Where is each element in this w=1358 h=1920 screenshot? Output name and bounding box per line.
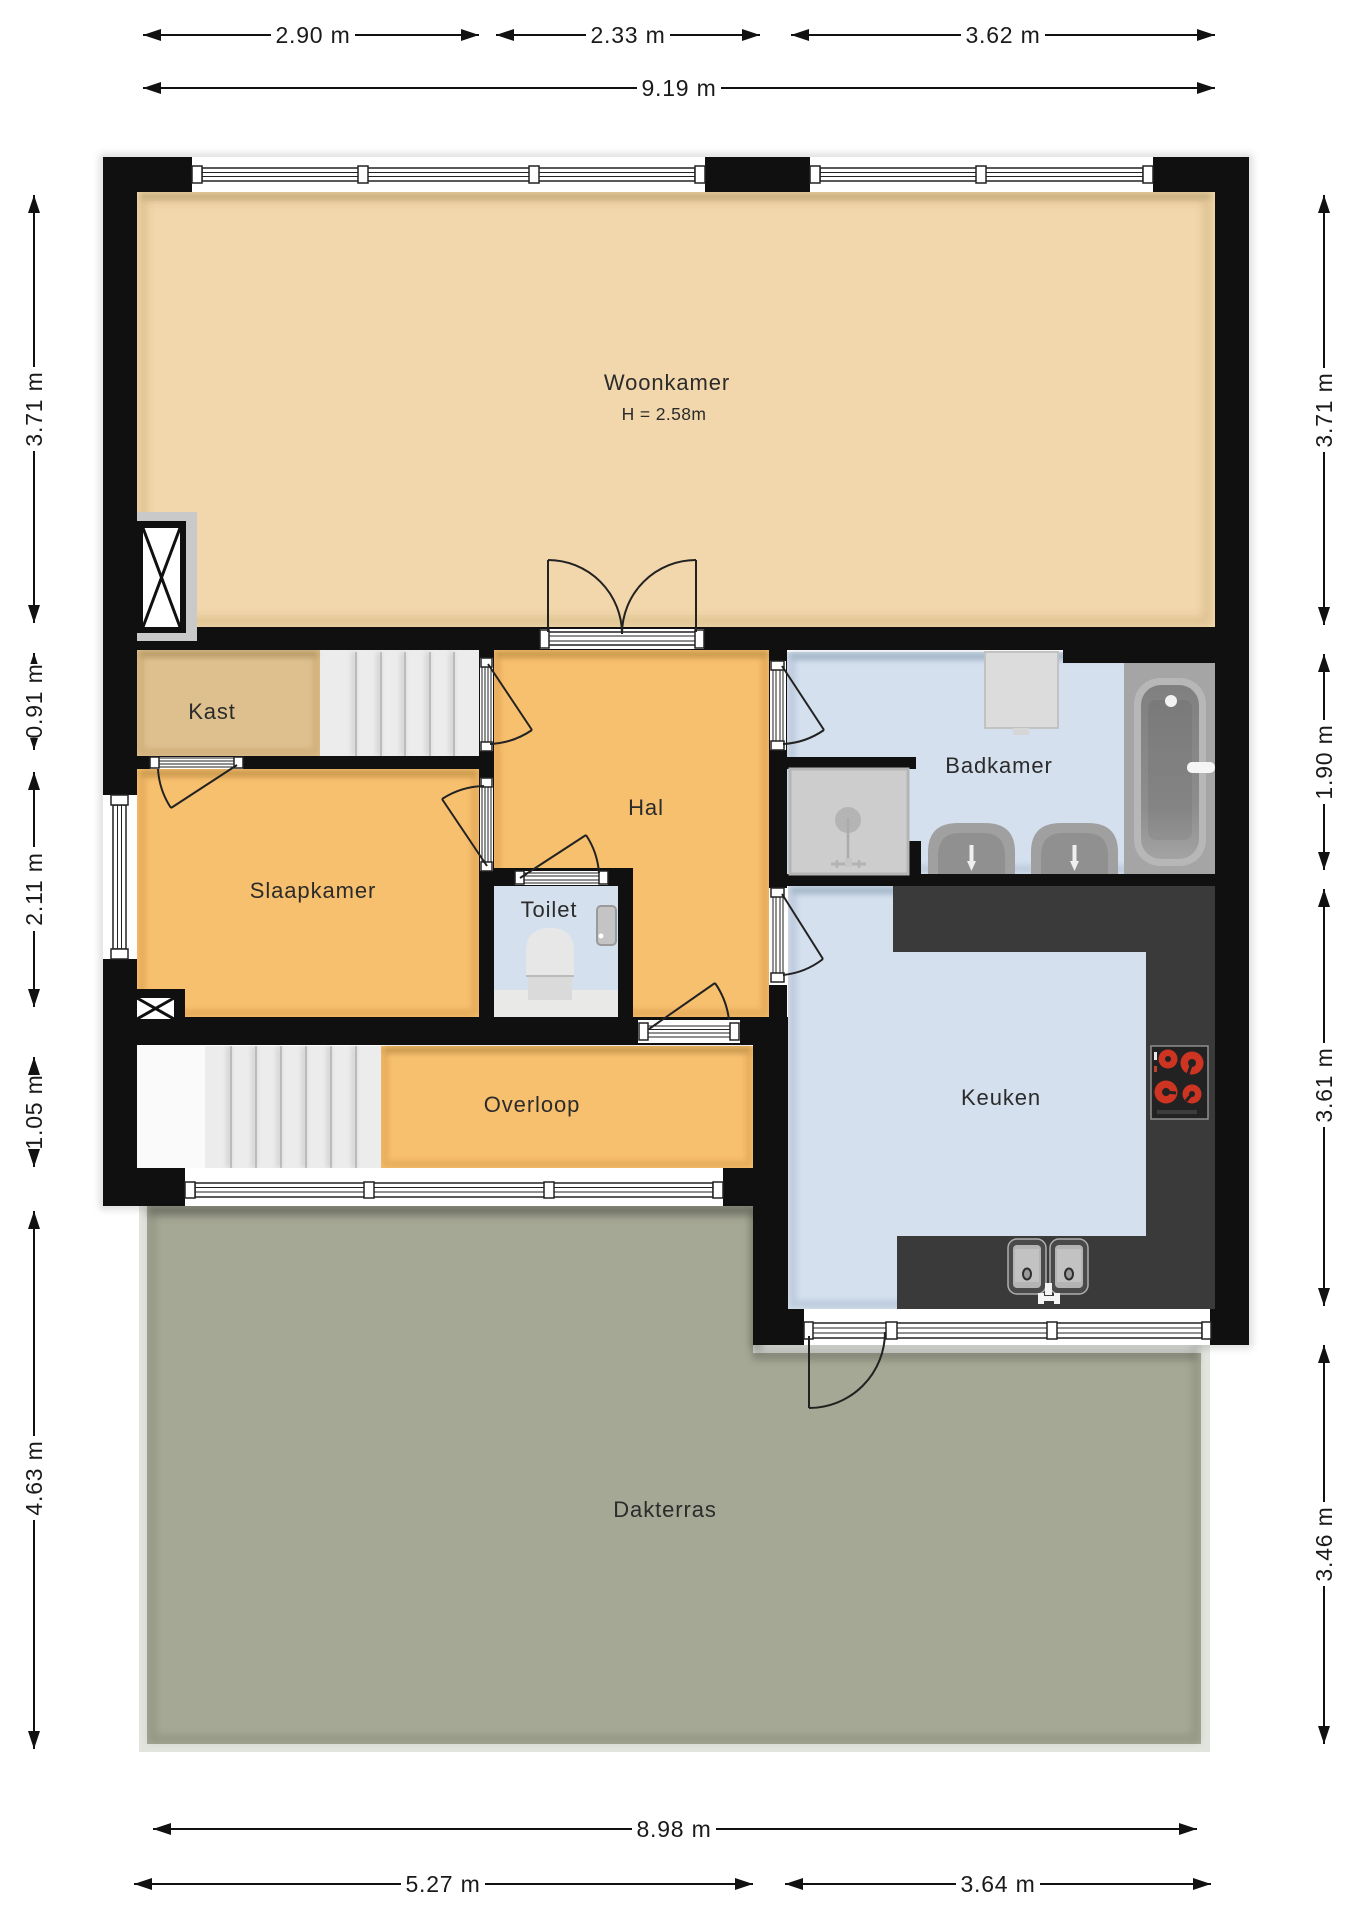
- svg-text:Badkamer: Badkamer: [945, 753, 1052, 778]
- svg-text:3.62 m: 3.62 m: [965, 22, 1040, 48]
- svg-text:2.90 m: 2.90 m: [275, 22, 350, 48]
- svg-text:0.91 m: 0.91 m: [21, 663, 47, 738]
- svg-text:Kast: Kast: [188, 699, 236, 724]
- svg-text:Slaapkamer: Slaapkamer: [250, 878, 376, 903]
- svg-text:4.63 m: 4.63 m: [21, 1440, 47, 1515]
- svg-text:2.11 m: 2.11 m: [21, 852, 47, 925]
- svg-text:Dakterras: Dakterras: [613, 1497, 716, 1522]
- svg-text:H = 2.58m: H = 2.58m: [622, 404, 707, 424]
- svg-text:5.27 m: 5.27 m: [405, 1871, 480, 1897]
- svg-text:Keuken: Keuken: [961, 1085, 1041, 1110]
- svg-text:3.71 m: 3.71 m: [1311, 372, 1337, 447]
- svg-text:3.64 m: 3.64 m: [960, 1871, 1035, 1897]
- svg-text:9.19 m: 9.19 m: [641, 75, 716, 101]
- svg-text:2.33 m: 2.33 m: [590, 22, 665, 48]
- svg-text:Hal: Hal: [628, 795, 664, 820]
- svg-text:Toilet: Toilet: [521, 897, 578, 922]
- svg-text:3.61 m: 3.61 m: [1311, 1047, 1337, 1122]
- svg-text:Woonkamer: Woonkamer: [604, 370, 730, 395]
- svg-text:3.46 m: 3.46 m: [1311, 1506, 1337, 1581]
- svg-text:8.98 m: 8.98 m: [636, 1816, 711, 1842]
- svg-text:1.90 m: 1.90 m: [1311, 724, 1337, 799]
- svg-text:3.71 m: 3.71 m: [21, 371, 47, 446]
- svg-text:1.05 m: 1.05 m: [21, 1074, 47, 1149]
- svg-text:Overloop: Overloop: [484, 1092, 580, 1117]
